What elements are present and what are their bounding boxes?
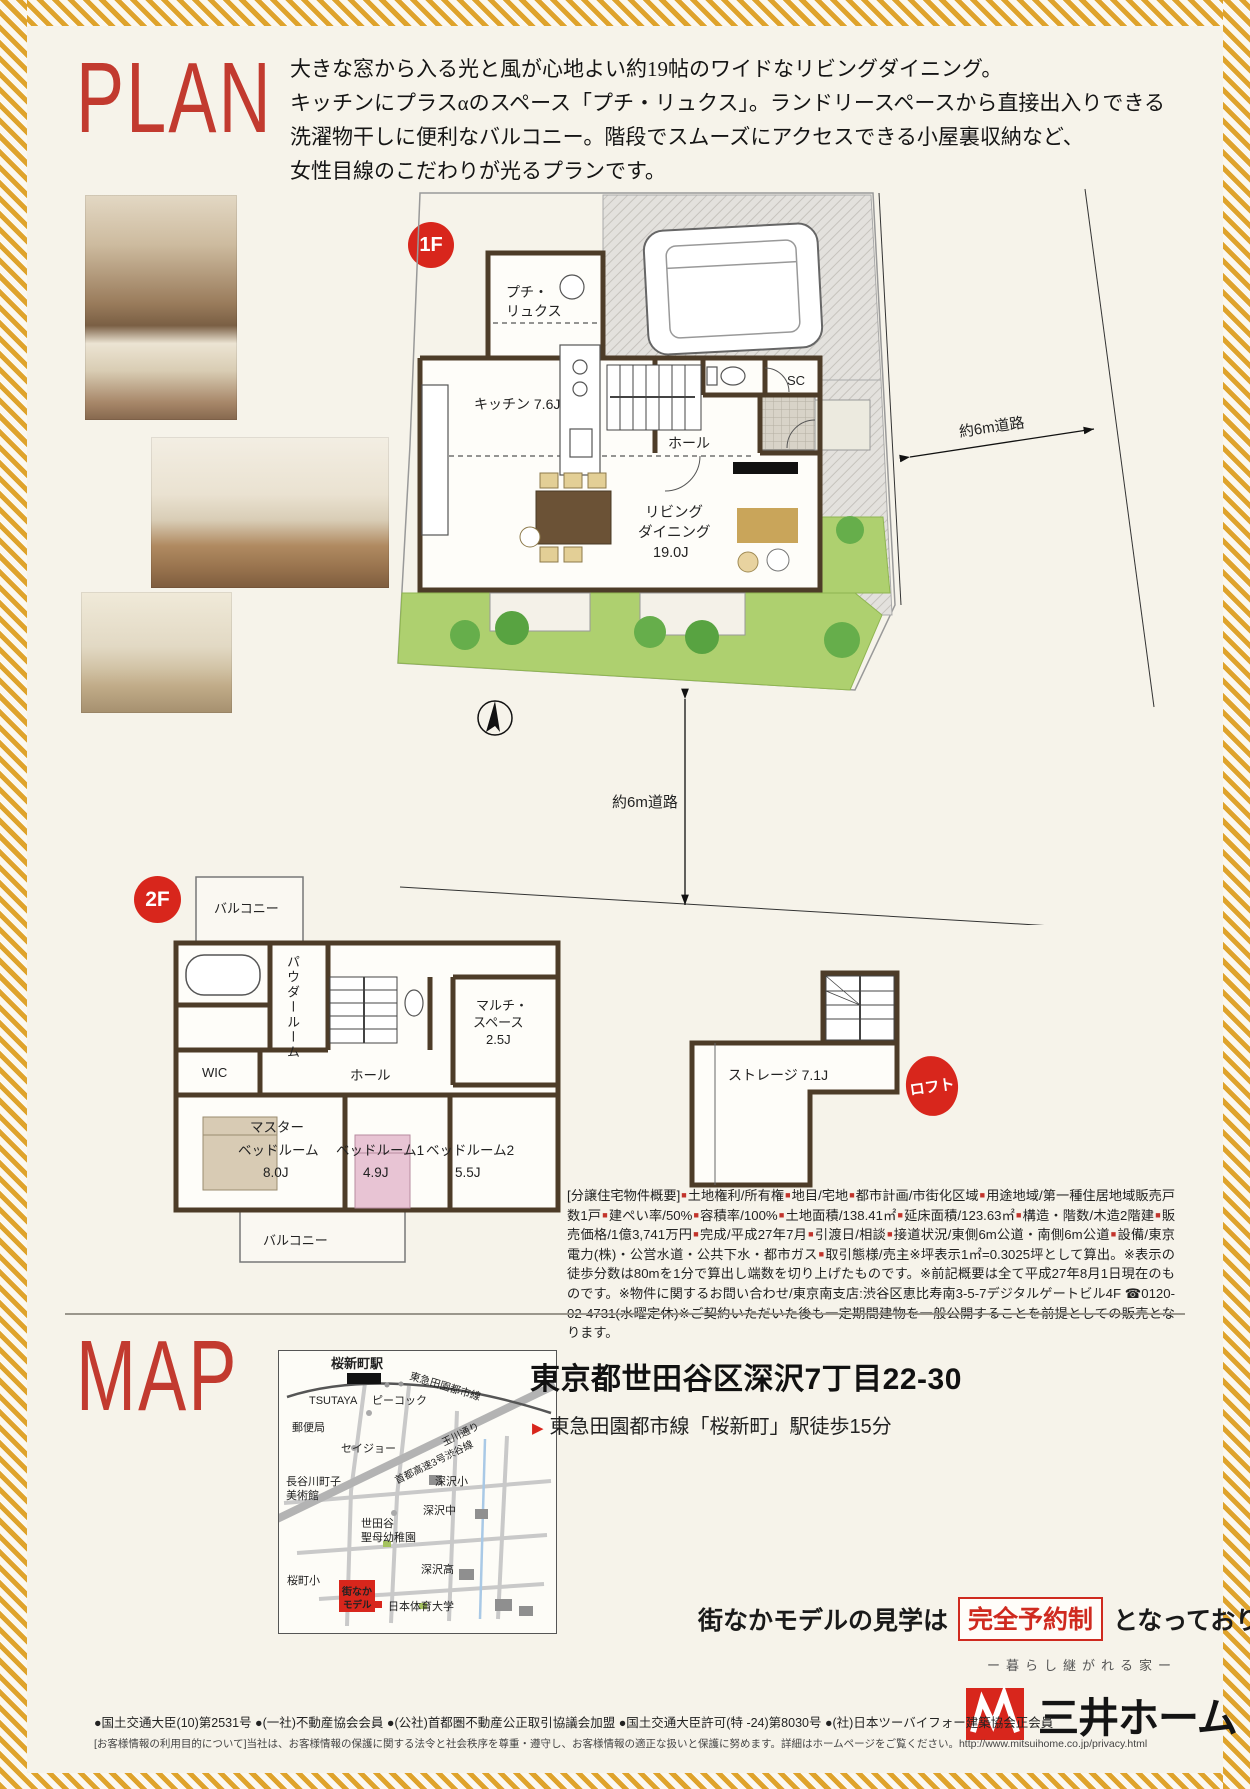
booking-notice: 街なかモデルの見学は 完全予約制 となっております	[698, 1597, 1250, 1641]
stairs-2f	[330, 977, 397, 1043]
arrow-marker-icon: ▶	[532, 1420, 544, 1437]
room-label-master2: ベッドルーム	[238, 1143, 319, 1158]
map-label-seibo1: 世田谷	[361, 1517, 394, 1530]
map-label-museum1: 長谷川町子	[286, 1475, 341, 1488]
access-map: 桜新町駅 東急田園都市線 TSUTAYA ピーコック 郵便局 セイジョー 玉川通…	[278, 1350, 557, 1634]
map-label-sakura-e: 桜町小	[287, 1573, 320, 1587]
floorplan-1f: 約6m道路 約6m道路 プチ・ リュクス キッチン 7.6J ホール SC リビ…	[350, 185, 1180, 925]
section-divider	[65, 1313, 1185, 1315]
porch-step	[815, 400, 870, 450]
room-label-multi1: マルチ・	[476, 998, 528, 1013]
brand-logo-text: 三井ホーム	[1038, 1684, 1237, 1744]
booking-pre: 街なかモデルの見学は	[698, 1601, 948, 1637]
map-label-museum2: 美術館	[286, 1488, 319, 1502]
room-label-multi3: 2.5J	[486, 1032, 511, 1047]
room-label-living2: ダイニング	[638, 524, 711, 541]
tv-board	[733, 462, 798, 474]
stool-icon	[738, 552, 758, 572]
tree-icon	[450, 620, 480, 650]
room-label-living1: リビング	[645, 504, 703, 521]
floor2-badge-label: 2F	[145, 888, 170, 912]
booking-post: となっております	[1113, 1601, 1250, 1637]
plan-description-line: 洗濯物干しに便利なバルコニー。階段でスムーズにアクセスできる小屋裏収納など、	[290, 120, 1165, 154]
tree-icon	[685, 620, 719, 654]
room-label-bed1a: ベッドルーム1	[336, 1143, 424, 1158]
toilet-icon	[707, 367, 745, 385]
room-label-powder: パウダールーム	[283, 955, 302, 1070]
flyer-page: PLAN 大きな窓から入る光と風が心地よい約19帖のワイドなリビングダイニング。…	[0, 0, 1250, 1789]
map-label-model2: モデル	[343, 1599, 372, 1611]
stairs-1f	[607, 365, 701, 430]
room-label-balcony-top: バルコニー	[214, 901, 279, 916]
map-label-station: 桜新町駅	[331, 1356, 384, 1371]
frame-right	[1223, 0, 1250, 1789]
room-label-petit2: リュクス	[506, 303, 562, 319]
access-text: 東急田園都市線「桜新町」駅徒歩15分	[550, 1416, 892, 1438]
map-dot	[385, 1383, 390, 1388]
room-label-hall: ホール	[668, 435, 710, 451]
plan-description-line: 大きな窓から入る光と風が心地よい約19帖のワイドなリビングダイニング。	[290, 52, 1165, 86]
footer-memberships: ●国土交通大臣(10)第2531号 ●(一社)不動産協会会員 ●(公社)首都圏不…	[94, 1712, 1053, 1731]
plan-description-line: 女性目線のこだわりが光るプランです。	[290, 154, 1165, 188]
map-label-seijo: セイジョー	[341, 1442, 396, 1455]
plan-title: PLAN	[76, 48, 273, 148]
room-label-bed2b: 5.5J	[455, 1165, 481, 1180]
map-site-marker	[375, 1601, 382, 1608]
map-label-seibo2: 聖母幼稚園	[361, 1531, 416, 1544]
floorplan-2f: バルコニー WIC ホール マルチ・ スペース 2.5J マスター ベッドルーム…	[168, 870, 568, 1270]
toilet-icon	[405, 990, 423, 1016]
room-label-multi2: スペース	[473, 1015, 523, 1030]
car-icon	[643, 223, 823, 356]
room-label-storage: ストレージ 7.1J	[728, 1067, 828, 1083]
tree-icon	[634, 616, 666, 648]
map-dot	[366, 1410, 372, 1416]
tree-icon	[495, 611, 529, 645]
north-arrow-icon	[478, 701, 512, 735]
map-streets	[284, 1383, 551, 1626]
photo-dining-room	[85, 195, 237, 420]
frame-left	[0, 0, 27, 1789]
road-label-bottom: 約6m道路	[612, 794, 678, 811]
room-label-living3: 19.0J	[653, 545, 688, 561]
footer-privacy: [お客様情報の利用目的について]当社は、お客様情報の保護に関する法令と社会秩序を…	[94, 1736, 1147, 1751]
property-address: 東京都世田谷区深沢7丁目22-30	[530, 1354, 962, 1398]
room-label-balcony-bottom: バルコニー	[263, 1233, 328, 1248]
frame-top	[0, 0, 1250, 26]
room-label-kitchen: キッチン 7.6J	[474, 396, 560, 412]
bathtub-icon	[186, 955, 260, 995]
stairs-loft	[826, 976, 894, 1040]
property-outline: [分譲住宅物件概要]■土地権利/所有権■地目/宅地■都市計画/市街化区域■用途地…	[567, 1186, 1175, 1343]
map-label-fukasawa-h: 深沢高	[421, 1562, 454, 1576]
room-label-bed1b: 4.9J	[363, 1165, 389, 1180]
plan-description-line: キッチンにプラスαのスペース「プチ・リュクス」。ランドリースペースから直接出入り…	[290, 86, 1165, 120]
map-label-tsutaya: TSUTAYA	[309, 1395, 358, 1407]
frame-bottom	[0, 1773, 1250, 1789]
tree-icon	[836, 516, 864, 544]
road-edge-right-far	[1085, 189, 1154, 707]
map-dot	[399, 1382, 404, 1387]
map-title: MAP	[76, 1326, 239, 1426]
plan-description: 大きな窓から入る光と風が心地よい約19帖のワイドなリビングダイニング。 キッチン…	[290, 52, 1165, 188]
room-label-bed2a: ベッドルーム2	[426, 1143, 514, 1158]
brand-tagline: ー暮らし継がれる家ー	[987, 1655, 1177, 1674]
map-dot	[391, 1510, 397, 1516]
map-label-fukasawa-j: 深沢中	[423, 1503, 456, 1517]
photo-bedroom	[81, 592, 232, 713]
room-label-sc: SC	[787, 373, 805, 388]
map-label-univ: 日本体育大学	[388, 1599, 454, 1613]
washbasin-icon	[560, 275, 584, 299]
floorplan-loft: ストレージ 7.1J	[610, 850, 950, 1190]
map-label-model1: 街なか	[341, 1585, 372, 1598]
room-label-master3: 8.0J	[263, 1165, 289, 1180]
rug	[737, 508, 798, 543]
map-stream	[480, 1439, 485, 1619]
booking-highlight: 完全予約制	[958, 1597, 1103, 1641]
chair-icon	[767, 549, 789, 571]
map-station-rect	[347, 1373, 381, 1384]
room-label-master1: マスター	[250, 1120, 304, 1135]
map-label-peacock: ピーコック	[372, 1394, 427, 1407]
tree-icon	[824, 622, 860, 658]
road-label-right: 約6m道路	[958, 414, 1026, 441]
map-label-post: 郵便局	[292, 1421, 325, 1434]
access-info: ▶東急田園都市線「桜新町」駅徒歩15分	[532, 1410, 892, 1439]
storage-floor	[692, 1043, 897, 1185]
map-label-fukasawa-e: 深沢小	[435, 1474, 468, 1488]
room-label-wic: WIC	[202, 1065, 227, 1080]
room-label-hall-2f: ホール	[350, 1068, 391, 1083]
room-label-petit: プチ・	[506, 284, 548, 300]
